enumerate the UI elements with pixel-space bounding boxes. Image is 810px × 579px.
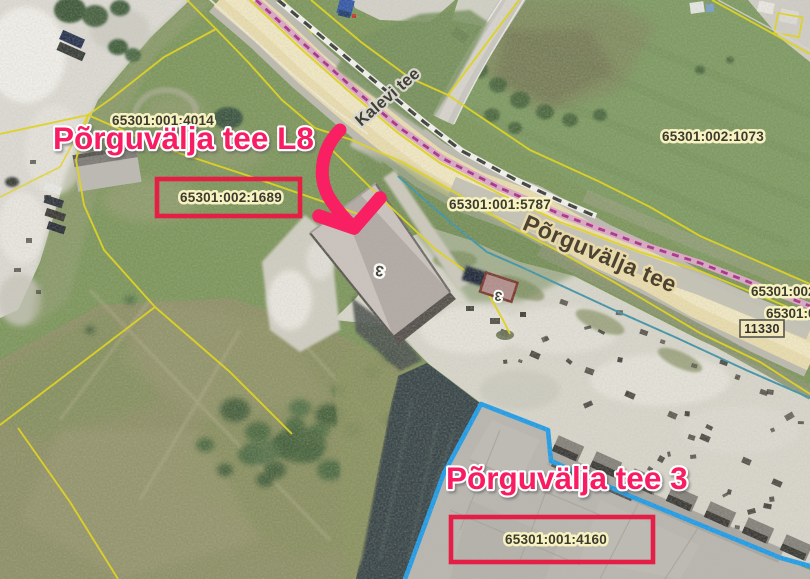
svg-text:65301:002:1057: 65301:002:1057 [751, 284, 810, 299]
svg-text:65301:001:5787: 65301:001:5787 [449, 197, 551, 212]
svg-text:11330: 11330 [744, 322, 780, 336]
svg-text:65301:001:5786: 65301:001:5786 [766, 306, 810, 321]
svg-text:65301:002:1073: 65301:002:1073 [662, 129, 764, 144]
svg-text:Põrguvälja tee 3: Põrguvälja tee 3 [446, 460, 688, 496]
svg-text:Põrguvälja tee L8: Põrguvälja tee L8 [53, 120, 314, 156]
svg-text:65301:001:4160: 65301:001:4160 [505, 532, 607, 547]
svg-text:65301:002:1689: 65301:002:1689 [180, 190, 282, 205]
